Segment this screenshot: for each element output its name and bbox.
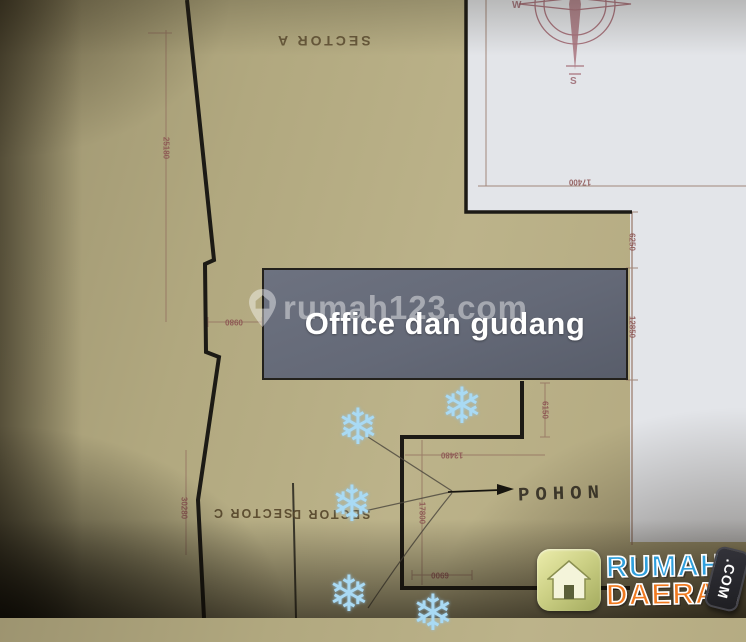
pohon-annotation: POHON xyxy=(518,481,606,506)
house-icon xyxy=(547,559,591,601)
compass-west-label: W xyxy=(512,0,521,11)
compass-south-label: S xyxy=(570,76,577,87)
tree-snowflake-icon: ❄ xyxy=(441,381,483,431)
watermark-text: rumah123.com xyxy=(283,289,528,327)
sector-a-label: SECTOR A xyxy=(275,33,371,49)
dimension-left-upper: 25180 xyxy=(162,137,171,159)
dimension-top-right: 17400 xyxy=(569,178,591,187)
dimension-lower-width: 6900 xyxy=(431,571,449,580)
pencil-leader-lines xyxy=(360,437,452,608)
dimension-right-upper: 6250 xyxy=(628,233,637,251)
sector-c-label: SECTOR C xyxy=(212,506,292,520)
dimension-left-lower: 30280 xyxy=(180,497,189,519)
logo-tile xyxy=(537,549,601,611)
rumah-daerah-logo: RUMAH DAERAH .COM xyxy=(537,544,746,618)
watermark: rumah123.com xyxy=(249,287,528,329)
dimension-step-width: 13480 xyxy=(441,451,463,460)
dimension-notch-width: 0980 xyxy=(225,318,243,327)
tree-snowflake-icon: ❄ xyxy=(337,402,379,452)
tree-snowflake-icon: ❄ xyxy=(328,569,370,619)
tree-snowflake-icon: ❄ xyxy=(331,479,373,529)
logo-com-text: .COM xyxy=(714,557,739,600)
dimension-right-lower: 12850 xyxy=(628,316,637,338)
dimension-step-height: 6150 xyxy=(541,401,550,419)
location-pin-icon xyxy=(249,289,276,327)
pohon-arrow-icon xyxy=(448,484,514,495)
dimension-lower-height: 17800 xyxy=(418,502,427,524)
tree-snowflake-icon: ❄ xyxy=(412,588,454,638)
